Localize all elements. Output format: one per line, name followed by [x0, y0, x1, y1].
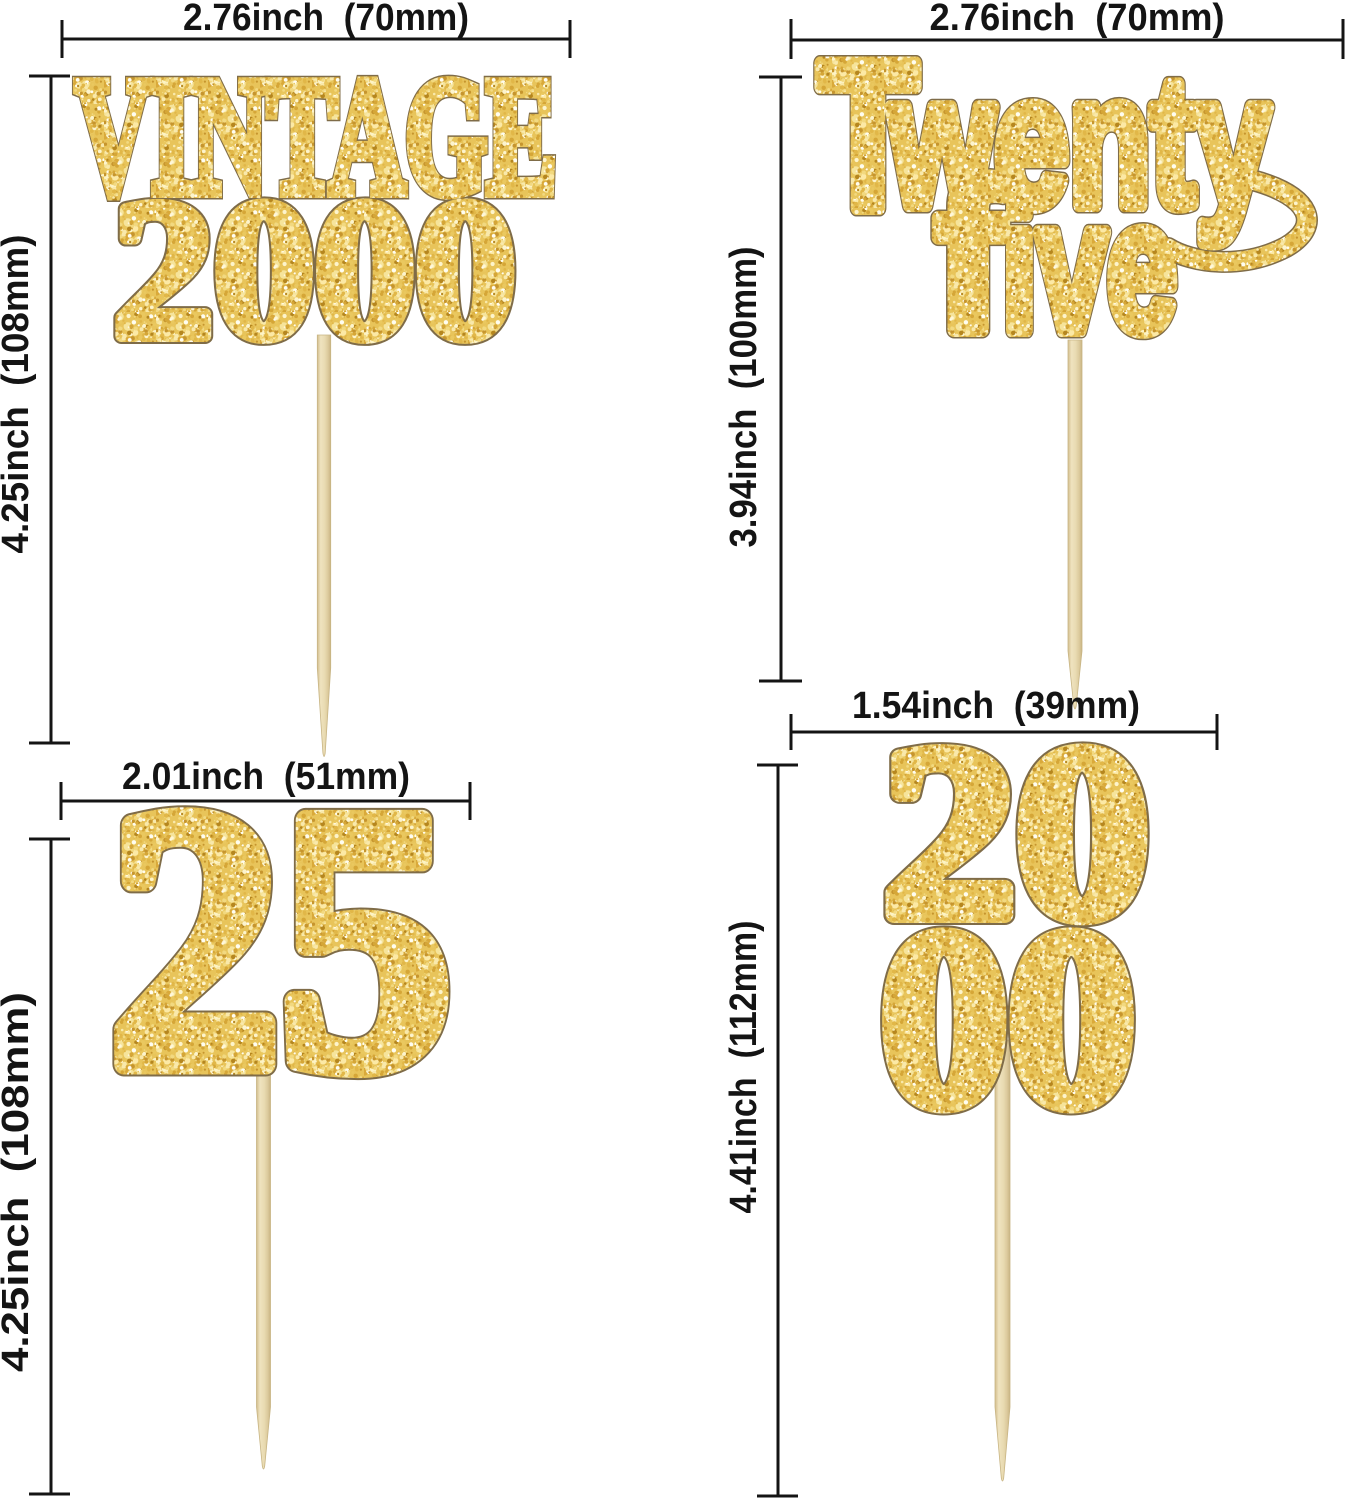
- svg-text:00: 00: [881, 878, 1136, 1158]
- svg-text:3.94inch (100mm): 3.94inch (100mm): [723, 247, 765, 548]
- svg-text:2.76inch (70mm): 2.76inch (70mm): [183, 0, 469, 39]
- svg-text:2000: 2000: [113, 160, 516, 379]
- svg-text:4.41inch (112mm): 4.41inch (112mm): [723, 921, 765, 1214]
- svg-text:2.76inch (70mm): 2.76inch (70mm): [930, 0, 1225, 39]
- svg-text:4.25inch (108mm): 4.25inch (108mm): [0, 235, 37, 554]
- svg-text:4.25inch (108mm): 4.25inch (108mm): [0, 992, 37, 1372]
- svg-text:ive: ive: [1002, 164, 1177, 370]
- svg-text:25: 25: [110, 734, 452, 1145]
- svg-text:f: f: [935, 138, 1004, 375]
